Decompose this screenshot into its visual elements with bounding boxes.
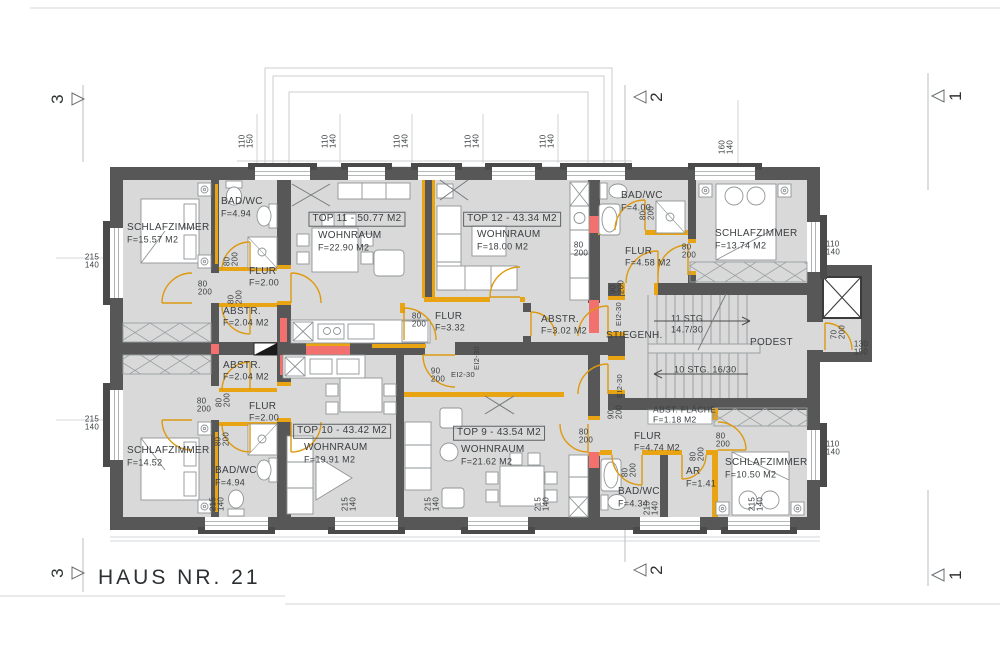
drawing-title: HAUS NR. 21 (98, 566, 261, 590)
floor-plan-sheet: SCHLAFZIMMERF=15.57 M2BAD/WCF=4.94FLURF=… (0, 0, 1000, 667)
terrace-outline (237, 68, 632, 167)
elevator-annex (807, 265, 872, 362)
abstellflaeche (648, 410, 712, 424)
level-symbol (254, 343, 277, 355)
